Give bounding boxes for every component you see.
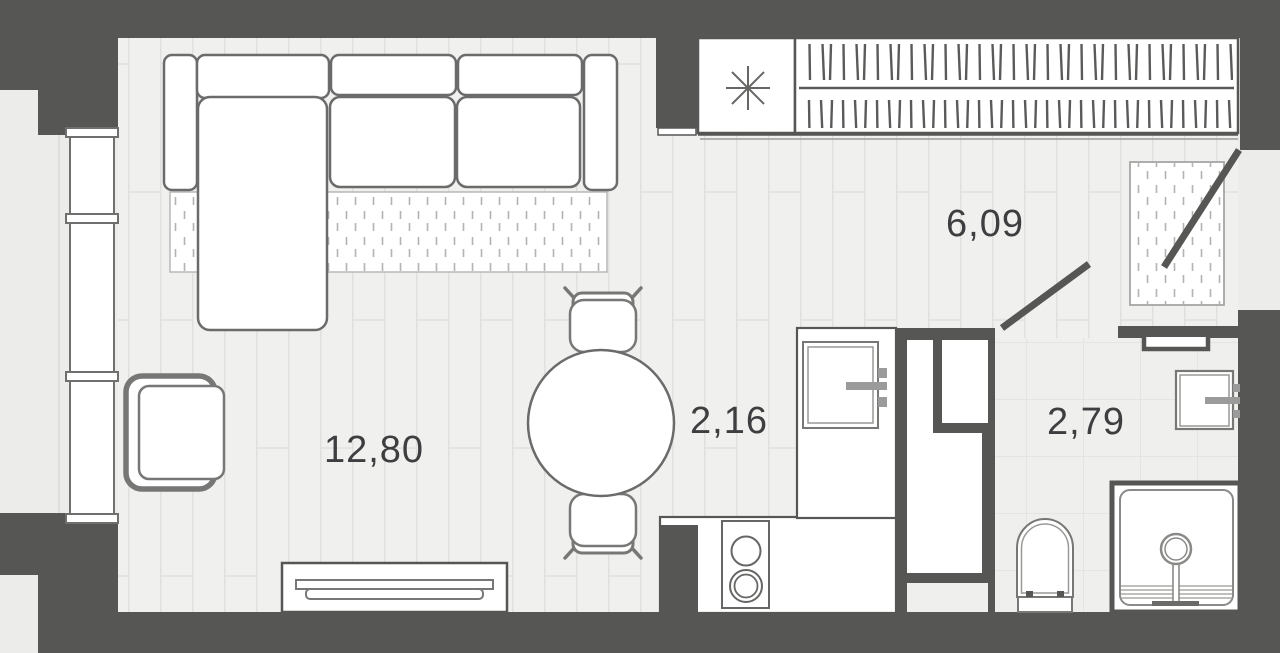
sofa-back-cushion <box>331 55 456 95</box>
wall-stub-living-hall <box>656 38 698 128</box>
outside-notch <box>0 575 38 653</box>
wall-niche-left <box>933 338 942 433</box>
burner <box>732 537 761 566</box>
chair-seat <box>570 300 636 352</box>
chair-seat <box>570 494 636 546</box>
window <box>66 128 118 523</box>
bathroom-faucet <box>1205 397 1240 404</box>
floor-plan-svg: 12,80 2,16 6,09 2,79 <box>0 0 1280 653</box>
wall-corner-topright <box>1240 38 1280 150</box>
sofa-chaise <box>198 97 327 330</box>
tv-stand <box>282 563 507 612</box>
toilet <box>1017 519 1073 612</box>
kitchen-faucet <box>846 382 887 390</box>
hallway-area-label: 6,09 <box>946 203 1024 245</box>
wall-kitchen-shaft <box>896 328 907 613</box>
living-room-area-label: 12,80 <box>324 429 424 471</box>
shower <box>1112 483 1240 612</box>
bathroom-area-label: 2,79 <box>1047 401 1125 443</box>
kitchen-sink <box>803 342 887 428</box>
wall-above-window <box>38 0 118 135</box>
kitchen-area-label: 2,16 <box>690 400 768 442</box>
wall-bathroom-left-thin <box>988 338 995 613</box>
wall-niche <box>940 338 990 426</box>
wall-top <box>0 0 1280 38</box>
utility-unit <box>698 38 795 133</box>
sofa-back-cushion <box>458 55 582 95</box>
wall-right <box>1238 310 1280 653</box>
shower-column <box>1173 562 1179 603</box>
dining-chair-bottom <box>565 494 641 558</box>
sofa-seat-cushion <box>330 97 455 187</box>
wall-bathroom-top <box>1118 326 1240 338</box>
sofa-back-cushion <box>197 55 329 98</box>
window-mullion <box>66 514 118 523</box>
bathroom-sink <box>1176 371 1240 429</box>
wall-shaft-bottom <box>896 573 995 583</box>
sofa-armrest-right <box>584 55 617 190</box>
armchair <box>126 376 224 489</box>
wall-stub-kitchen <box>660 525 698 613</box>
dining-table <box>528 350 674 496</box>
floor-plan: 12,80 2,16 6,09 2,79 <box>0 0 1280 653</box>
dining-chair-top <box>565 288 641 352</box>
shower-base <box>1152 601 1199 606</box>
doormat-rug <box>1130 162 1224 305</box>
window-mullion <box>66 214 118 223</box>
sofa-seat-cushion <box>457 97 580 187</box>
wall-stub-cap <box>658 128 696 135</box>
under-bath-niche <box>905 583 985 612</box>
window-mullion <box>66 128 118 137</box>
wardrobe-hangers <box>800 44 1233 128</box>
asterisk-icon <box>726 66 770 110</box>
cooktop <box>722 521 769 608</box>
sofa-armrest-left <box>164 55 197 190</box>
window-mullion <box>66 372 118 381</box>
tv-base <box>306 589 483 599</box>
wall-shaft-top <box>896 328 995 340</box>
toilet-bowl <box>1017 519 1073 597</box>
tv <box>296 580 493 589</box>
wall-bottom <box>110 612 1280 653</box>
mirror-shelf <box>1144 337 1208 349</box>
